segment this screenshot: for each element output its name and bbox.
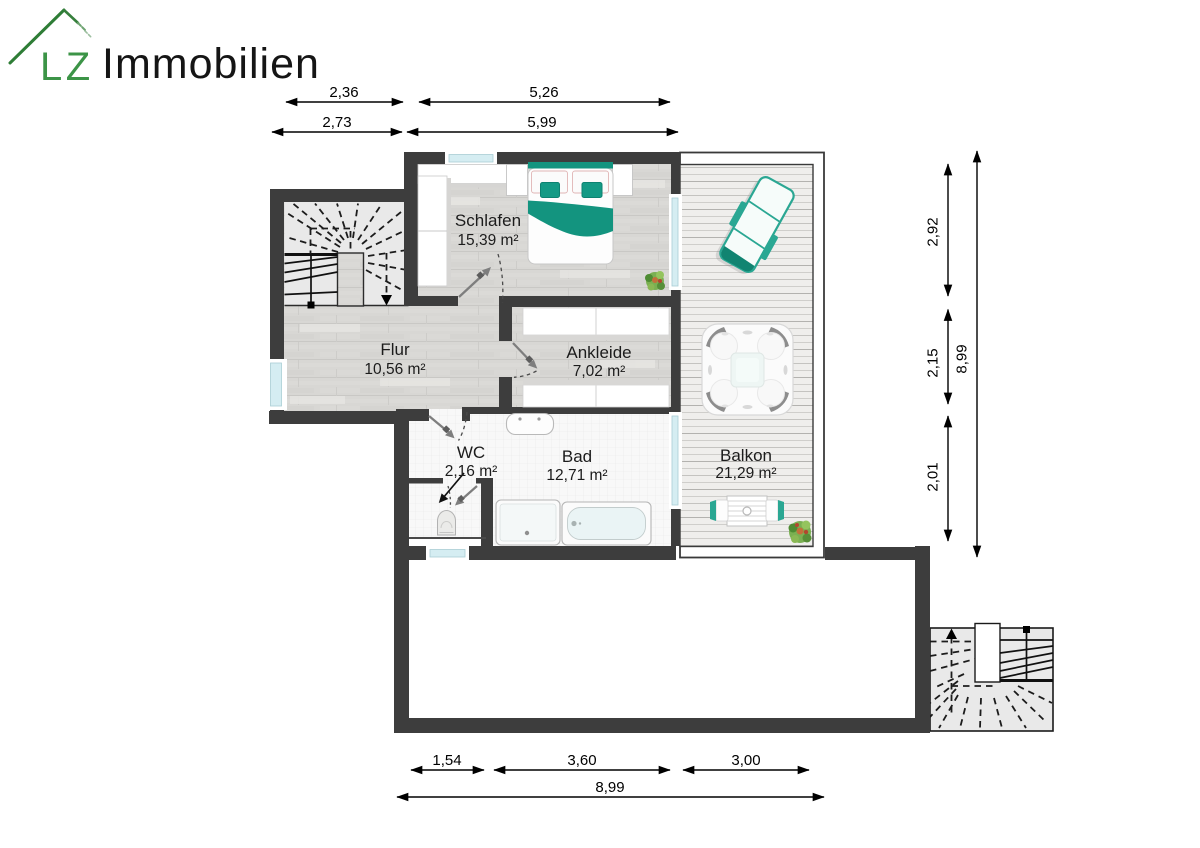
svg-text:2,01: 2,01 [925, 462, 942, 491]
svg-text:1,54: 1,54 [432, 752, 461, 769]
svg-text:5,99: 5,99 [527, 114, 556, 131]
svg-text:WC: WC [457, 443, 485, 462]
svg-text:LZ: LZ [40, 45, 94, 89]
svg-text:Schlafen: Schlafen [455, 211, 521, 230]
svg-text:3,60: 3,60 [567, 752, 596, 769]
svg-text:Flur: Flur [380, 340, 410, 359]
svg-text:8,99: 8,99 [954, 344, 971, 373]
svg-text:12,71 m²: 12,71 m² [546, 467, 607, 484]
svg-text:2,16 m²: 2,16 m² [445, 463, 498, 480]
svg-text:Immobilien: Immobilien [102, 40, 320, 88]
svg-text:5,26: 5,26 [529, 84, 558, 101]
svg-text:2,36: 2,36 [329, 84, 358, 101]
svg-text:Bad: Bad [562, 447, 592, 466]
svg-text:3,00: 3,00 [731, 752, 760, 769]
svg-text:15,39 m²: 15,39 m² [457, 232, 518, 249]
svg-text:10,56 m²: 10,56 m² [364, 361, 425, 378]
svg-text:7,02 m²: 7,02 m² [573, 363, 626, 380]
svg-text:8,99: 8,99 [595, 779, 624, 796]
svg-text:2,15: 2,15 [925, 348, 942, 377]
svg-text:Ankleide: Ankleide [566, 343, 631, 362]
svg-text:21,29 m²: 21,29 m² [715, 465, 776, 482]
svg-text:2,73: 2,73 [322, 114, 351, 131]
svg-text:2,92: 2,92 [925, 217, 942, 246]
svg-text:Balkon: Balkon [720, 446, 772, 465]
